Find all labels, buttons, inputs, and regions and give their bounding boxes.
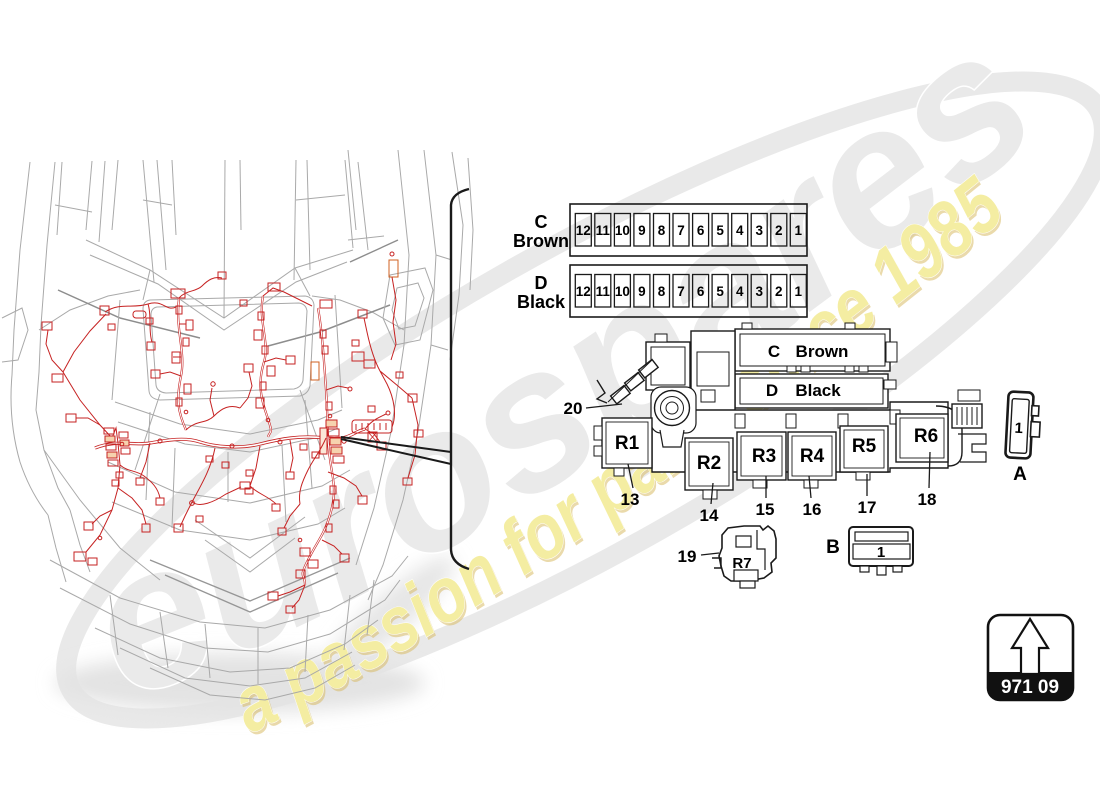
svg-text:8: 8 [658, 284, 666, 299]
svg-text:eurospares: eurospares [58, 0, 1073, 741]
svg-text:20: 20 [564, 399, 583, 418]
svg-text:Brown: Brown [513, 231, 569, 251]
svg-text:971 09: 971 09 [1001, 677, 1059, 698]
svg-text:6: 6 [697, 284, 705, 299]
svg-text:16: 16 [803, 500, 822, 519]
svg-text:12: 12 [576, 284, 591, 299]
svg-text:R7: R7 [732, 555, 751, 572]
svg-text:11: 11 [596, 284, 611, 299]
svg-text:5: 5 [716, 223, 724, 238]
svg-text:13: 13 [621, 490, 640, 509]
svg-text:R1: R1 [615, 433, 640, 454]
svg-text:6: 6 [697, 223, 705, 238]
svg-text:1: 1 [795, 223, 803, 238]
svg-text:10: 10 [615, 284, 630, 299]
svg-text:1: 1 [795, 284, 803, 299]
svg-text:12: 12 [576, 223, 591, 238]
svg-text:3: 3 [755, 284, 763, 299]
svg-text:D: D [535, 273, 548, 293]
svg-text:5: 5 [716, 284, 724, 299]
svg-text:7: 7 [677, 223, 685, 238]
svg-text:Black: Black [517, 292, 566, 312]
svg-text:2: 2 [775, 223, 783, 238]
svg-text:17: 17 [858, 498, 877, 517]
svg-text:10: 10 [615, 223, 630, 238]
svg-text:1: 1 [1014, 420, 1023, 437]
svg-text:19: 19 [678, 547, 697, 566]
svg-text:C: C [535, 212, 548, 232]
svg-text:8: 8 [658, 223, 666, 238]
svg-text:A: A [1013, 464, 1027, 485]
svg-text:4: 4 [736, 284, 744, 299]
svg-text:D: D [766, 381, 778, 400]
svg-text:9: 9 [638, 284, 646, 299]
svg-text:B: B [826, 537, 840, 558]
svg-text:3: 3 [755, 223, 763, 238]
svg-text:9: 9 [638, 223, 646, 238]
svg-text:R5: R5 [852, 436, 877, 457]
svg-text:C: C [768, 342, 780, 361]
svg-text:4: 4 [736, 223, 744, 238]
svg-text:Brown: Brown [796, 342, 849, 361]
svg-text:11: 11 [596, 223, 611, 238]
svg-text:18: 18 [918, 490, 937, 509]
svg-text:2: 2 [775, 284, 783, 299]
svg-text:1: 1 [877, 544, 885, 561]
svg-text:R6: R6 [914, 426, 938, 447]
svg-text:R3: R3 [752, 446, 776, 467]
svg-text:R4: R4 [800, 446, 825, 467]
svg-text:Black: Black [795, 381, 841, 400]
svg-text:14: 14 [700, 506, 719, 525]
svg-text:15: 15 [756, 500, 775, 519]
svg-text:R2: R2 [697, 453, 721, 474]
svg-text:7: 7 [677, 284, 685, 299]
